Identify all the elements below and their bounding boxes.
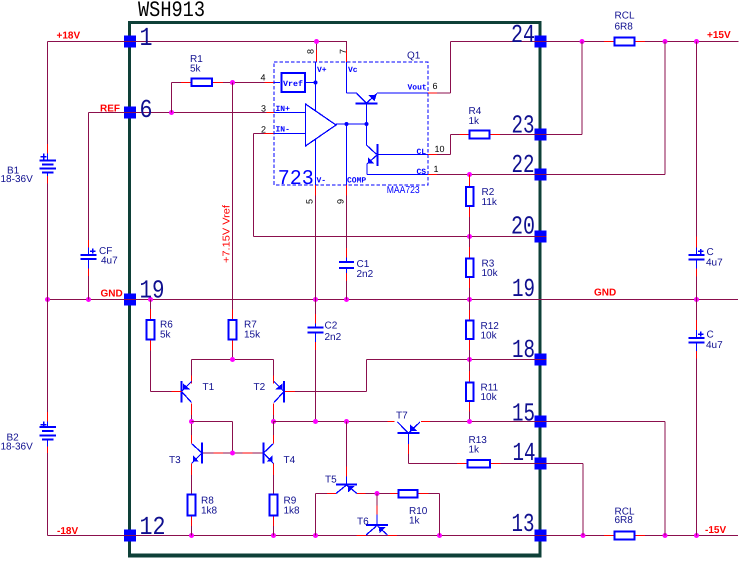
svg-text:T4: T4 <box>284 455 296 466</box>
svg-text:GND: GND <box>594 288 616 299</box>
svg-text:15: 15 <box>512 399 535 429</box>
svg-text:24: 24 <box>511 20 535 50</box>
svg-text:4u7: 4u7 <box>706 340 723 351</box>
svg-text:12: 12 <box>140 512 166 542</box>
svg-text:Vref: Vref <box>283 80 303 89</box>
svg-text:18-36V: 18-36V <box>1 174 34 185</box>
svg-text:T1: T1 <box>203 382 215 393</box>
svg-text:2n2: 2n2 <box>325 332 342 343</box>
svg-text:9: 9 <box>336 199 346 204</box>
svg-text:CL: CL <box>417 148 427 157</box>
svg-text:REF: REF <box>100 104 120 115</box>
svg-text:V+: V+ <box>317 66 327 75</box>
svg-text:1: 1 <box>140 23 153 53</box>
svg-text:T3: T3 <box>169 455 181 466</box>
svg-text:1k: 1k <box>469 445 481 456</box>
svg-text:6: 6 <box>140 95 153 125</box>
svg-text:14: 14 <box>513 438 536 468</box>
svg-text:COMP: COMP <box>347 177 366 186</box>
svg-text:1: 1 <box>434 164 439 174</box>
svg-text:3: 3 <box>261 104 266 114</box>
svg-text:1k: 1k <box>469 116 481 127</box>
svg-text:6: 6 <box>433 81 438 91</box>
svg-text:+18V: +18V <box>57 31 81 42</box>
svg-text:Vc: Vc <box>348 66 358 75</box>
svg-text:T7: T7 <box>396 411 408 422</box>
svg-text:23: 23 <box>512 111 535 141</box>
svg-text:T6: T6 <box>357 516 369 527</box>
svg-text:8: 8 <box>306 49 316 54</box>
svg-text:IN-: IN- <box>276 126 290 135</box>
svg-text:10k: 10k <box>481 392 498 403</box>
svg-text:7: 7 <box>338 49 348 54</box>
svg-text:-18V: -18V <box>57 526 78 537</box>
svg-text:15k: 15k <box>244 330 261 341</box>
svg-text:18-36V: 18-36V <box>1 442 34 453</box>
svg-text:1k8: 1k8 <box>284 506 301 517</box>
svg-text:20: 20 <box>511 212 535 242</box>
svg-text:WSH913: WSH913 <box>138 0 205 23</box>
svg-text:1k8: 1k8 <box>201 506 218 517</box>
svg-text:IN+: IN+ <box>276 105 291 114</box>
svg-text:GND: GND <box>101 289 123 300</box>
svg-text:Q1: Q1 <box>407 51 421 62</box>
svg-text:RCL: RCL <box>615 11 635 22</box>
svg-text:5k: 5k <box>160 330 172 341</box>
svg-text:5: 5 <box>305 199 315 204</box>
svg-text:T2: T2 <box>254 382 266 393</box>
svg-text:6R8: 6R8 <box>615 22 634 33</box>
svg-text:10: 10 <box>435 144 445 154</box>
svg-text:6R8: 6R8 <box>615 515 634 526</box>
svg-text:10k: 10k <box>481 331 498 342</box>
svg-text:4u7: 4u7 <box>101 256 118 267</box>
svg-text:19: 19 <box>512 274 535 304</box>
svg-text:CS: CS <box>417 168 427 177</box>
svg-text:18: 18 <box>512 335 535 365</box>
svg-text:V-: V- <box>317 177 327 186</box>
svg-text:C: C <box>707 330 714 341</box>
svg-text:C2: C2 <box>325 321 338 332</box>
svg-text:10k: 10k <box>482 268 499 279</box>
svg-text:723: 723 <box>278 168 314 191</box>
svg-text:2n2: 2n2 <box>357 269 374 280</box>
svg-text:MAA723: MAA723 <box>387 185 420 196</box>
svg-text:11k: 11k <box>482 197 498 208</box>
svg-text:-15V: -15V <box>705 525 726 536</box>
svg-text:1k: 1k <box>409 516 421 527</box>
svg-text:4u7: 4u7 <box>706 258 723 269</box>
svg-text:5k: 5k <box>190 64 202 75</box>
svg-text:+7.15V Vref: +7.15V Vref <box>222 205 233 263</box>
svg-text:22: 22 <box>512 150 535 180</box>
svg-text:2: 2 <box>261 125 266 135</box>
svg-text:19: 19 <box>140 276 165 306</box>
svg-text:4: 4 <box>261 73 266 83</box>
svg-text:T5: T5 <box>325 474 337 485</box>
svg-text:C: C <box>707 247 714 258</box>
svg-text:+15V: +15V <box>707 30 731 41</box>
svg-text:13: 13 <box>512 509 535 539</box>
svg-text:Vout: Vout <box>408 84 427 93</box>
